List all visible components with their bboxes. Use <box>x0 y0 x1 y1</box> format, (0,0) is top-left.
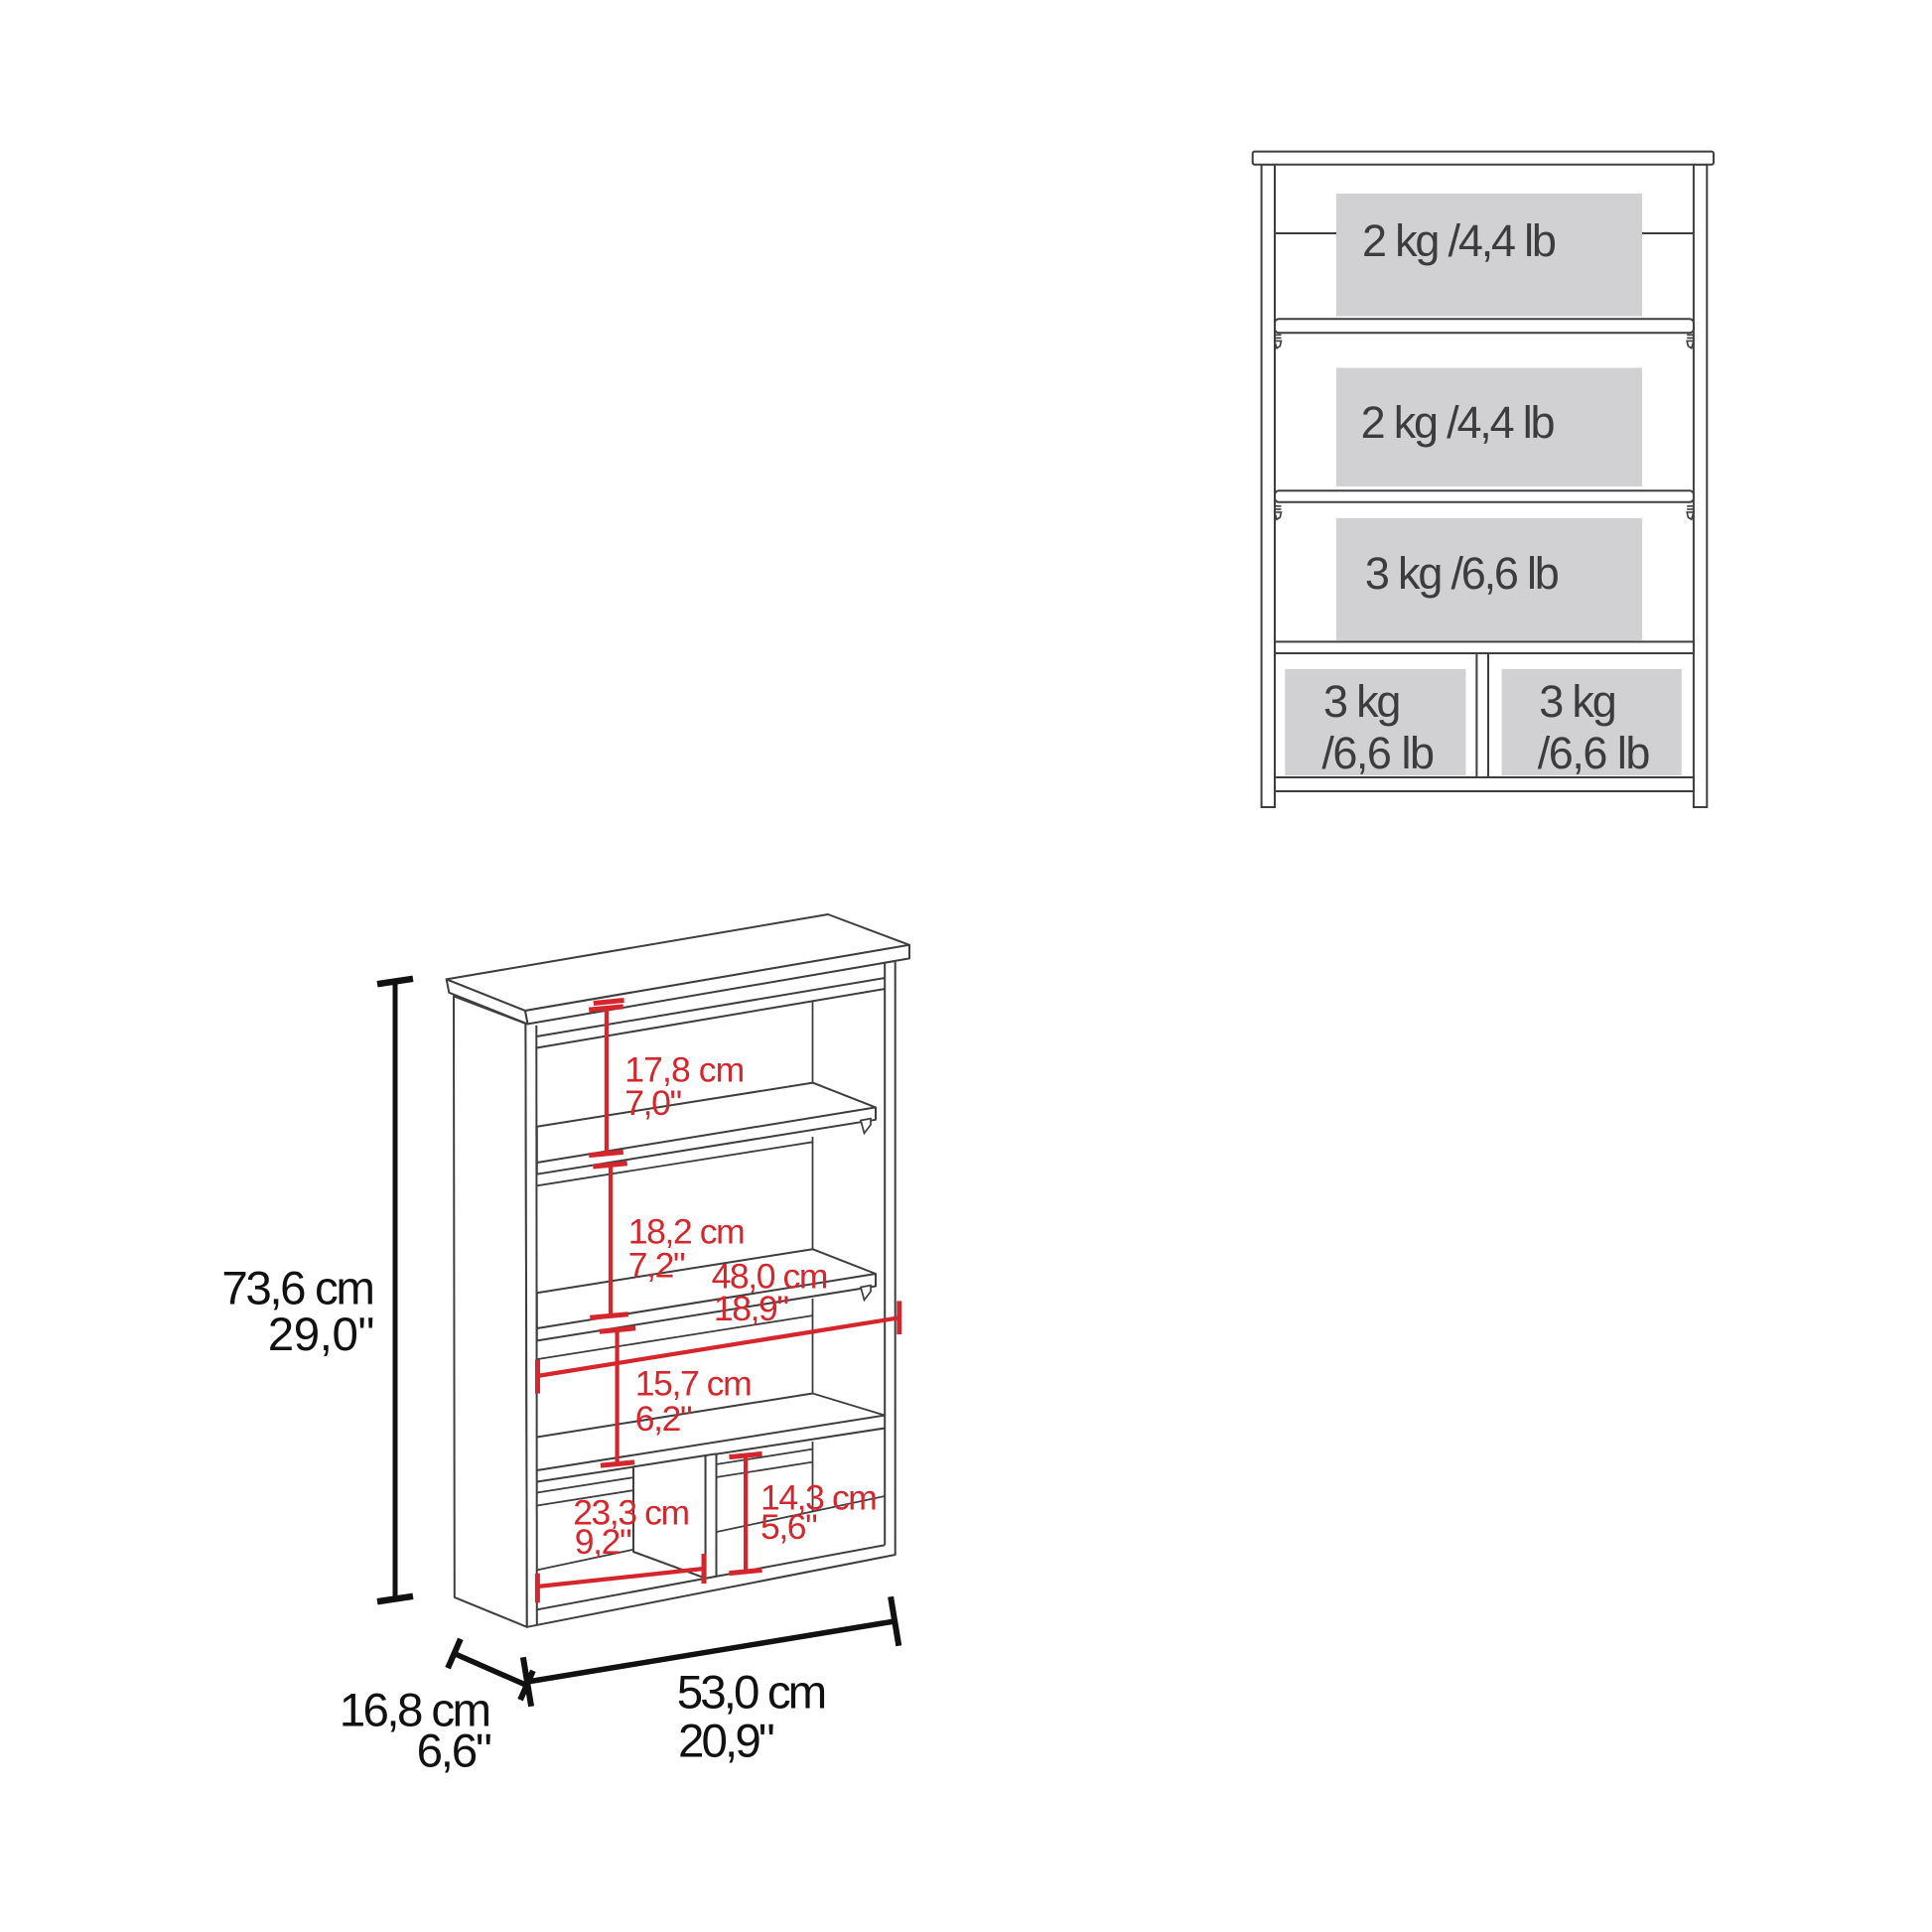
svg-text:6,6": 6,6" <box>417 1725 490 1778</box>
svg-text:9,2": 9,2" <box>575 1522 631 1562</box>
svg-text:29,0": 29,0" <box>268 1309 374 1361</box>
svg-text:53,0 cm: 53,0 cm <box>677 1666 825 1719</box>
svg-text:15,7 cm: 15,7 cm <box>635 1364 751 1404</box>
svg-text:20,9": 20,9" <box>678 1716 773 1768</box>
svg-text:/6,6 lb: /6,6 lb <box>1321 728 1434 778</box>
svg-text:6,2": 6,2" <box>635 1399 692 1439</box>
svg-text:18,9": 18,9" <box>714 1289 788 1328</box>
svg-text:3 kg /6,6 lb: 3 kg /6,6 lb <box>1365 548 1559 599</box>
svg-text:2 kg /4,4 lb: 2 kg /4,4 lb <box>1361 397 1555 448</box>
svg-text:/6,6 lb: /6,6 lb <box>1538 728 1650 778</box>
svg-text:3 kg: 3 kg <box>1323 676 1399 727</box>
svg-text:2 kg /4,4 lb: 2 kg /4,4 lb <box>1362 215 1556 266</box>
svg-text:3 kg: 3 kg <box>1539 676 1614 727</box>
svg-text:7,2": 7,2" <box>628 1246 685 1286</box>
svg-text:5,6": 5,6" <box>760 1507 817 1547</box>
svg-text:7,0": 7,0" <box>624 1083 681 1123</box>
svg-text:73,6 cm: 73,6 cm <box>221 1263 372 1315</box>
